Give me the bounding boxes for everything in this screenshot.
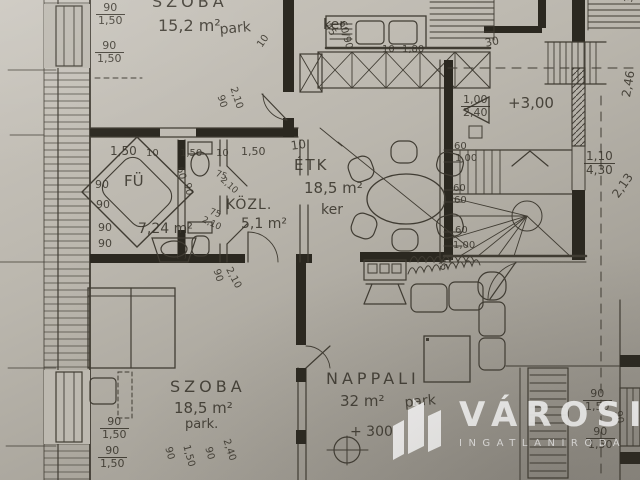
dim: 1,50 xyxy=(241,146,266,158)
dim-door: 2,10 xyxy=(218,176,239,196)
dim-door: 2,10 xyxy=(223,266,243,291)
dim: 90 xyxy=(202,446,215,461)
dim-stair: 1,00 xyxy=(455,154,477,165)
room-area-nappali: 32 m² xyxy=(340,394,384,410)
dim-stair: 45 xyxy=(434,257,448,273)
dim: 90 xyxy=(98,238,112,250)
room-label-nappali: NAPPALI xyxy=(326,371,420,388)
floor-note-nappali: park xyxy=(404,393,437,410)
room-label-furdo: FÜ xyxy=(124,174,144,190)
dim-stair: 60 xyxy=(454,196,467,207)
dim: 10 xyxy=(146,149,159,160)
annotation-layer: SZOBA15,2 m²parkker.FÜ7,24 m²KÖZL.5,1 m²… xyxy=(0,0,640,480)
dim: 90 xyxy=(95,179,109,191)
dim: 30 xyxy=(484,35,500,49)
dim-window: 901,50 xyxy=(96,2,125,26)
dim: 10 xyxy=(290,138,307,153)
dim: 90 xyxy=(96,199,110,211)
dim: 1,002,40 xyxy=(461,94,490,118)
dim: 2,46 xyxy=(620,70,637,98)
dim-stair: 60 xyxy=(454,142,467,153)
dim: 90 xyxy=(162,446,175,461)
dim: 10 xyxy=(256,34,272,50)
level-mark-nappali: + 300 xyxy=(350,425,393,440)
room-area-szoba2: 18,5 m² xyxy=(174,401,233,417)
dim-stair: 1,00 xyxy=(453,241,475,252)
dim: 10 xyxy=(382,45,395,56)
dim: 60/90 xyxy=(336,20,354,51)
dim: 1,50 xyxy=(110,145,137,158)
dim-window: 901,50 xyxy=(586,426,615,450)
dim: 10 xyxy=(216,149,229,160)
floor-note-szoba2: park. xyxy=(185,418,218,432)
floor-note-etkezo: ker xyxy=(321,203,343,218)
dim-window: 901,50 xyxy=(95,40,124,64)
floor-note-szoba1: park xyxy=(219,20,252,37)
dim-stair: 60 xyxy=(455,226,468,237)
dim: 90 xyxy=(98,222,112,234)
dim-door: 2,10 xyxy=(227,86,244,110)
dim: 2,40 xyxy=(220,438,237,462)
room-area-furdo: 7,24 m² xyxy=(138,222,193,237)
dim-wc: 90 xyxy=(181,182,194,197)
room-label-szoba2: SZOBA xyxy=(170,379,246,396)
room-area-kozl: 5,1 m² xyxy=(241,217,287,232)
dim-window: 901,50 xyxy=(583,388,612,412)
room-area-szoba1: 15,2 m² xyxy=(158,18,221,35)
dim-door: 90 xyxy=(214,94,228,109)
floorplan-scan: SZOBA15,2 m²parkker.FÜ7,24 m²KÖZL.5,1 m²… xyxy=(0,0,640,480)
dim: 1,50 xyxy=(180,444,196,468)
dim-wc: 60 xyxy=(174,166,187,181)
dim: 1,50 xyxy=(180,149,202,160)
room-label-etkezo: ÉTK xyxy=(294,158,328,174)
dim-stair: 60 xyxy=(453,184,466,195)
dim: 90 xyxy=(612,410,625,424)
dim: 1,80 xyxy=(402,45,424,56)
level-mark-stair: +3,00 xyxy=(508,96,554,112)
room-area-etkezo: 18,5 m² xyxy=(304,181,363,197)
dim: 1,104,30 xyxy=(584,150,615,176)
dim-window: 901,50 xyxy=(98,445,127,469)
room-label-kozl: KÖZL. xyxy=(226,198,272,213)
dim-window: 901,50 xyxy=(100,416,129,440)
dim: 3,55 xyxy=(623,0,637,3)
room-label-szoba1: SZOBA xyxy=(152,0,228,11)
